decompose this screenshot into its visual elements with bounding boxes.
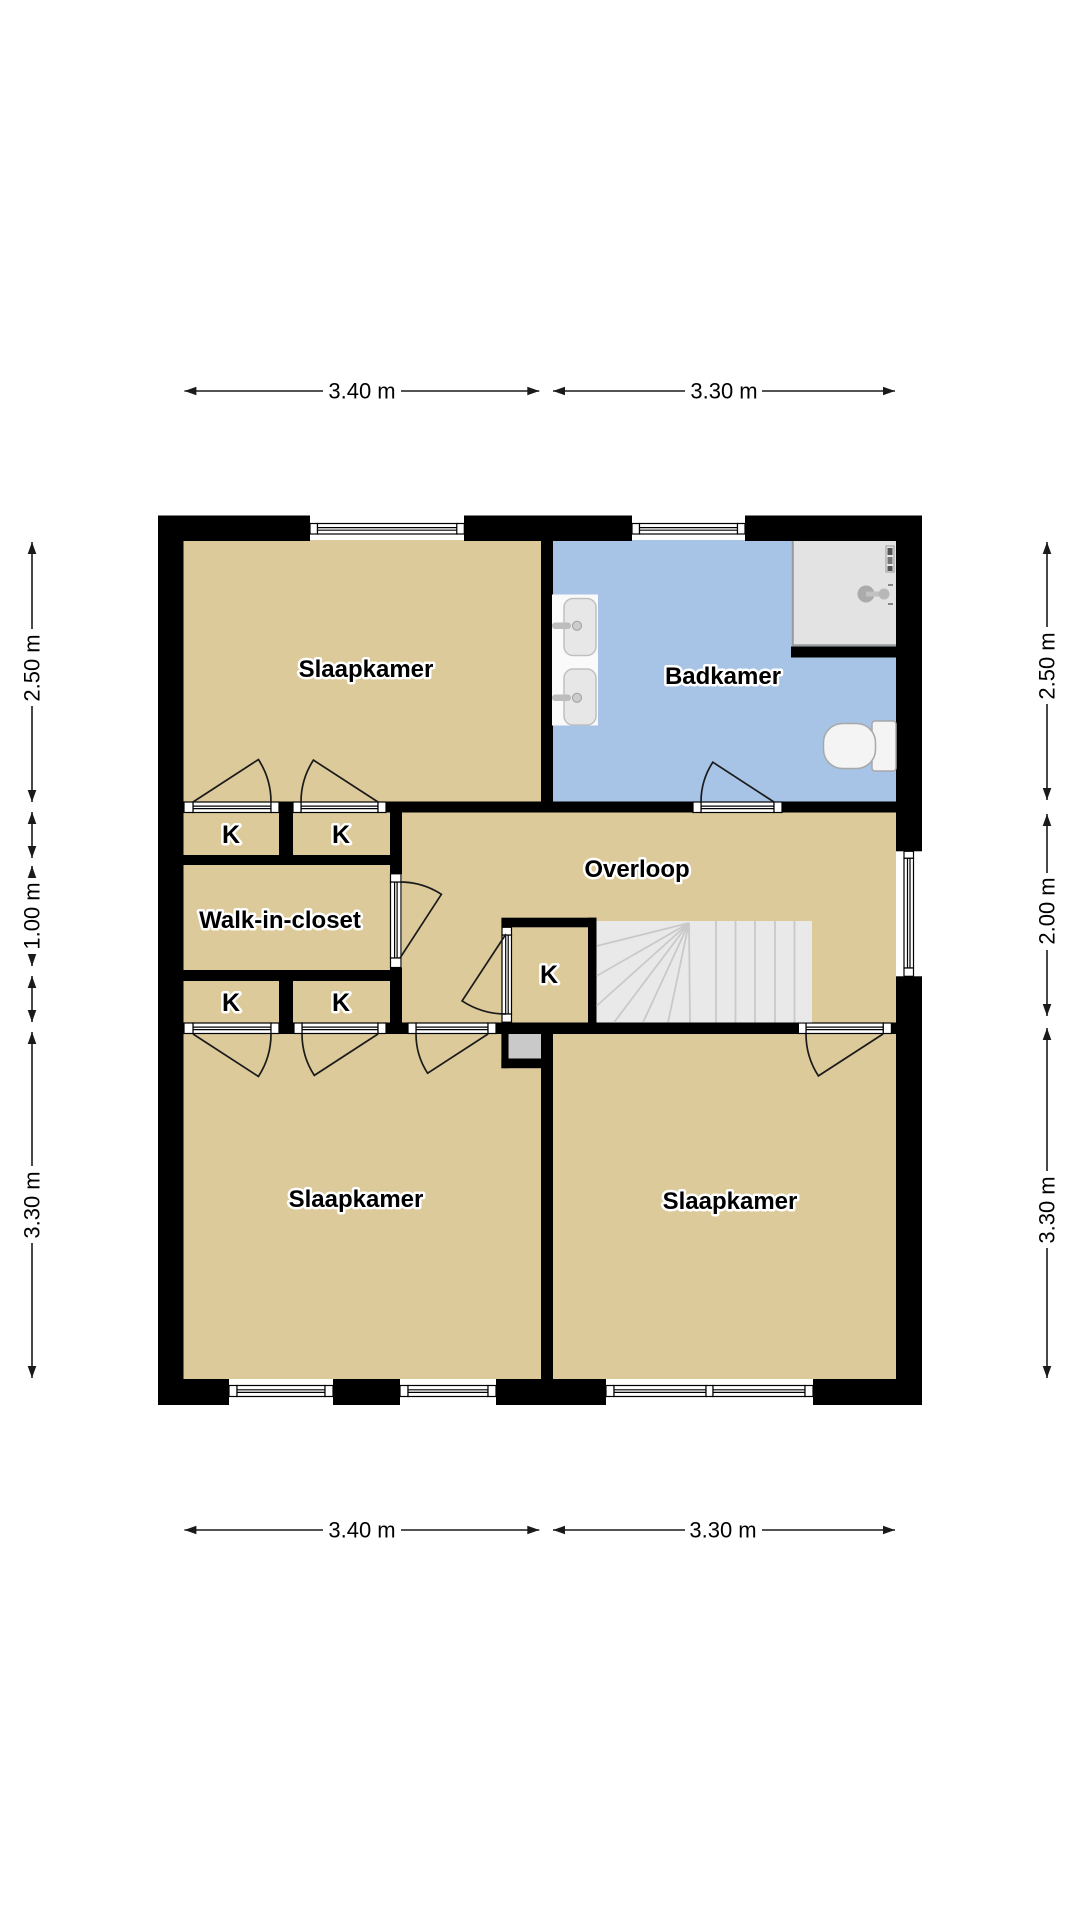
svg-text:K: K [222, 989, 240, 1017]
svg-text:3.30 m: 3.30 m [20, 1171, 45, 1238]
svg-text:K: K [332, 821, 350, 849]
svg-text:2.50 m: 2.50 m [20, 634, 45, 701]
svg-text:Badkamer: Badkamer [665, 663, 781, 690]
svg-text:Walk-in-closet: Walk-in-closet [199, 907, 361, 934]
svg-text:Slaapkamer: Slaapkamer [663, 1188, 798, 1215]
svg-text:3.30 m: 3.30 m [689, 1518, 756, 1543]
svg-text:Slaapkamer: Slaapkamer [289, 1186, 424, 1213]
svg-text:3.30 m: 3.30 m [690, 379, 757, 404]
svg-text:3.40 m: 3.40 m [328, 379, 395, 404]
svg-text:3.30 m: 3.30 m [1035, 1176, 1060, 1243]
svg-text:K: K [540, 961, 558, 989]
svg-text:Slaapkamer: Slaapkamer [299, 656, 434, 683]
svg-text:2.50 m: 2.50 m [1035, 632, 1060, 699]
svg-text:K: K [332, 989, 350, 1017]
svg-text:K: K [222, 821, 240, 849]
svg-text:1.00 m: 1.00 m [20, 882, 45, 949]
svg-text:3.40 m: 3.40 m [328, 1518, 395, 1543]
svg-text:Overloop: Overloop [584, 856, 689, 883]
svg-text:2.00 m: 2.00 m [1035, 877, 1060, 944]
